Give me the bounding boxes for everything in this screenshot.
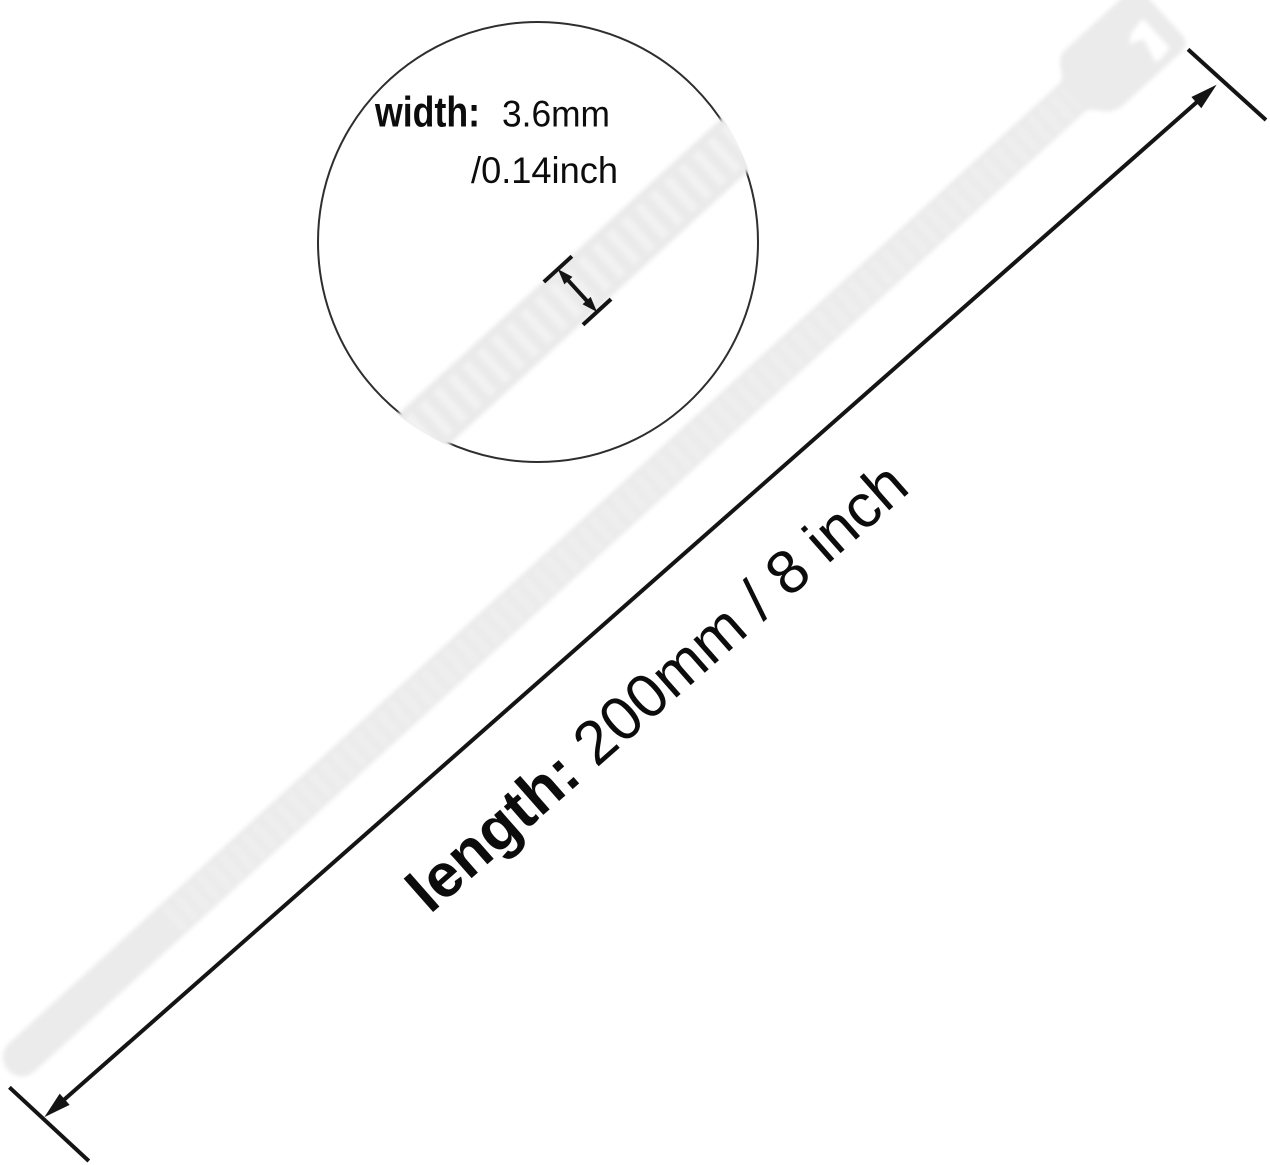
svg-text:3.6mm: 3.6mm [502,94,610,135]
svg-text:width:: width: [374,89,480,137]
svg-text:/0.14inch: /0.14inch [471,150,618,191]
